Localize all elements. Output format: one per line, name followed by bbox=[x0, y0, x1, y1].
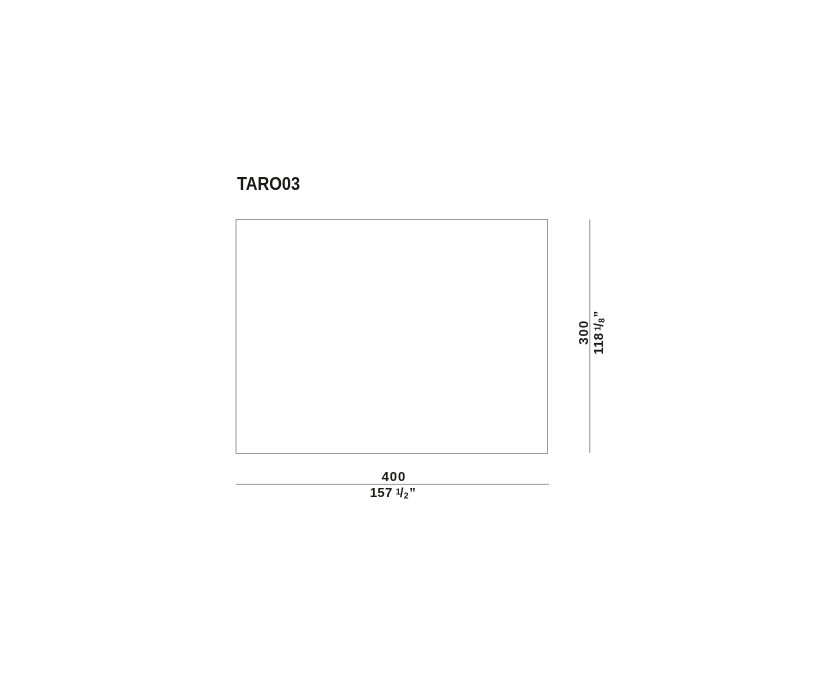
svg-text:300: 300 bbox=[576, 320, 591, 345]
svg-text:TARO03: TARO03 bbox=[237, 174, 300, 194]
svg-text:1571/2”: 1571/2” bbox=[370, 485, 416, 500]
svg-text:400: 400 bbox=[382, 469, 407, 484]
svg-text:1181/8”: 1181/8” bbox=[591, 311, 606, 355]
